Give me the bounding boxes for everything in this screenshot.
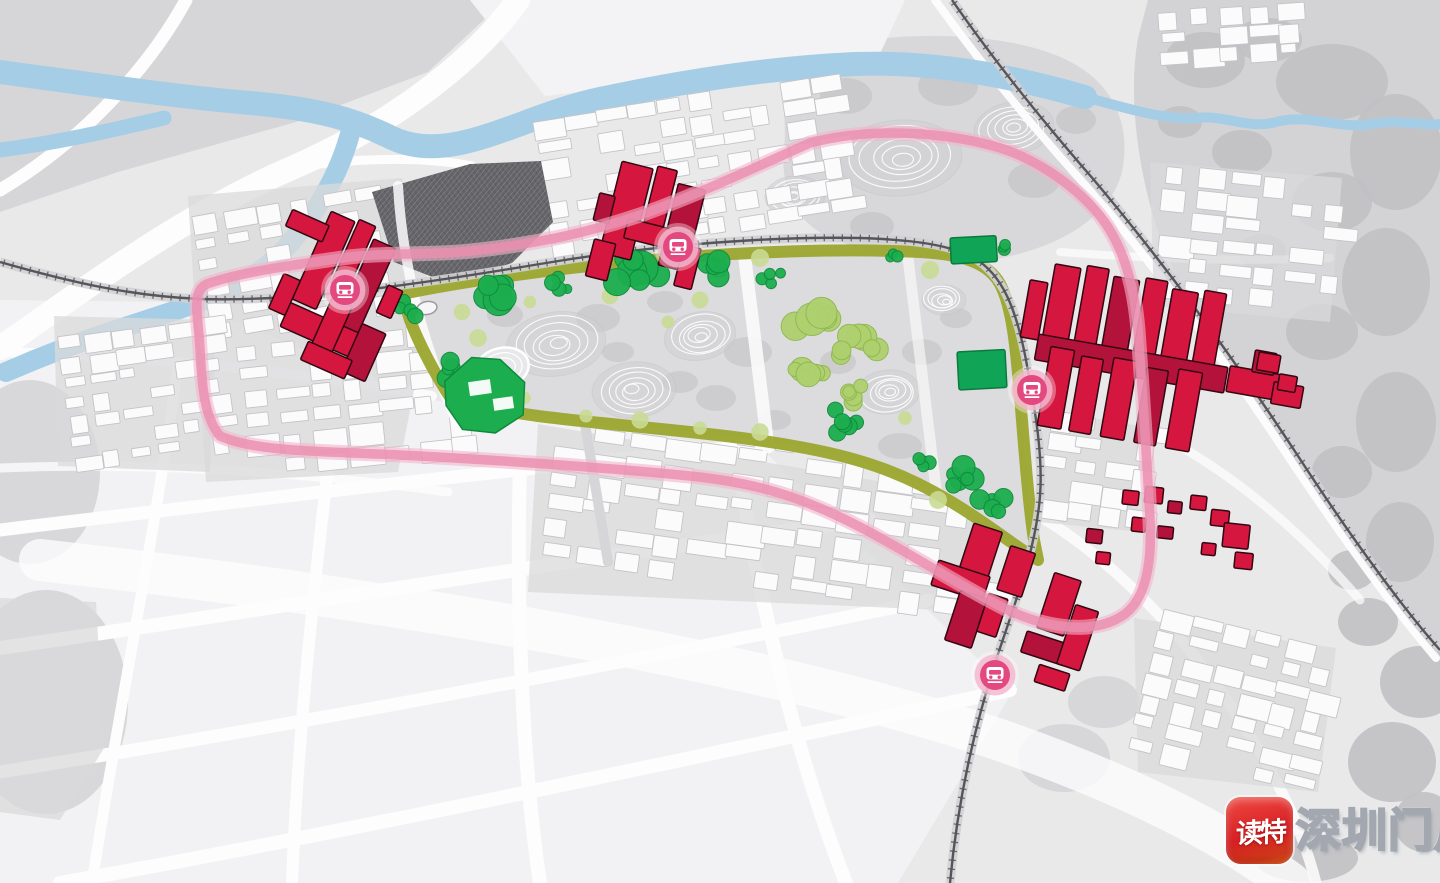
tree-blob-light xyxy=(579,409,592,422)
east-station xyxy=(1008,366,1056,414)
building-block xyxy=(111,329,134,349)
tree-icon xyxy=(991,504,1005,518)
building-block xyxy=(60,356,82,375)
tree-icon xyxy=(776,268,786,278)
building-block xyxy=(154,423,179,440)
building-block xyxy=(1043,455,1067,469)
building-block xyxy=(652,535,679,559)
building-block xyxy=(1149,652,1174,676)
building-block xyxy=(1255,243,1273,256)
building-block xyxy=(1190,239,1218,256)
south-station xyxy=(971,651,1019,699)
building-block xyxy=(92,392,110,412)
building-block xyxy=(58,334,81,349)
north-station xyxy=(654,223,702,271)
building-block xyxy=(647,560,674,581)
building-block xyxy=(753,571,778,590)
building-block xyxy=(655,508,684,532)
tree-icon xyxy=(545,275,561,291)
building-block xyxy=(1098,507,1121,528)
tree-icon xyxy=(832,341,851,360)
tree-blob-light xyxy=(692,292,709,309)
building-block xyxy=(414,396,432,415)
green-building xyxy=(950,236,997,264)
park-blob xyxy=(647,291,683,313)
building-block xyxy=(102,449,119,467)
building-block xyxy=(543,518,567,539)
building-block xyxy=(1165,167,1183,185)
building-block xyxy=(1160,51,1189,66)
red-building xyxy=(1234,552,1254,570)
building-block xyxy=(1250,43,1278,63)
building-block xyxy=(343,379,361,401)
tree-blob-light xyxy=(524,296,537,309)
building-block xyxy=(1281,43,1297,53)
park-blob xyxy=(602,342,634,362)
building-block xyxy=(183,419,200,433)
tree-blob-light xyxy=(693,421,706,434)
tree-icon xyxy=(892,251,903,262)
building-block xyxy=(1190,8,1207,25)
building-block xyxy=(84,331,113,353)
building-block xyxy=(825,178,853,200)
masterplan-map xyxy=(0,0,1440,883)
building-block xyxy=(1252,267,1273,287)
red-building xyxy=(1167,501,1182,514)
building-block xyxy=(285,456,305,471)
tree-icon xyxy=(441,352,459,370)
tree-icon xyxy=(961,472,974,485)
building-block xyxy=(614,552,640,573)
building-block xyxy=(90,352,120,374)
building-block xyxy=(839,488,871,514)
tree-icon xyxy=(863,340,880,357)
building-block xyxy=(1291,204,1312,218)
building-block xyxy=(689,114,713,136)
building-block xyxy=(348,402,383,419)
tree-icon xyxy=(764,268,775,279)
tree-blob-light xyxy=(921,261,939,279)
terrain-blob xyxy=(1068,676,1140,728)
building-block xyxy=(1162,32,1185,43)
tree-icon xyxy=(1000,239,1011,250)
building-block xyxy=(1139,695,1160,716)
park-blob xyxy=(696,385,736,411)
tree-icon xyxy=(834,414,850,430)
building-block xyxy=(765,186,792,206)
tree-canopy-blob xyxy=(1342,228,1430,336)
tree-blob-light xyxy=(662,316,675,329)
building-block xyxy=(1220,6,1244,25)
red-building xyxy=(1201,542,1216,555)
building-block xyxy=(1191,213,1225,234)
building-block xyxy=(1157,235,1195,260)
building-block xyxy=(239,366,267,380)
red-building xyxy=(1086,528,1103,544)
building-block xyxy=(236,346,256,362)
tree-cluster xyxy=(998,239,1010,255)
planning-map-page: { "title": "urban-park-masterplan-render… xyxy=(0,0,1440,883)
building-block xyxy=(659,488,681,505)
tree-blob-light xyxy=(751,249,769,267)
building-block xyxy=(116,346,147,366)
tree-icon xyxy=(407,308,423,324)
red-building xyxy=(1222,523,1250,550)
tree-icon xyxy=(946,478,961,493)
red-building xyxy=(1157,526,1174,540)
tree-icon xyxy=(854,379,868,393)
tree-icon xyxy=(806,297,837,328)
building-block xyxy=(70,415,89,435)
building-block xyxy=(897,591,920,616)
building-block xyxy=(246,412,269,428)
building-block xyxy=(1248,288,1273,307)
building-block xyxy=(313,405,341,421)
tree-blob-light xyxy=(454,304,471,321)
building-block xyxy=(1250,7,1269,25)
building-block xyxy=(1206,689,1225,707)
building-block xyxy=(703,196,727,215)
building-block xyxy=(734,190,760,211)
building-block xyxy=(833,537,862,562)
tree-canopy-blob xyxy=(1212,130,1272,174)
tree-blob-light xyxy=(929,491,947,509)
building-block xyxy=(1277,2,1305,21)
tree-icon xyxy=(478,275,498,295)
tree-blob-light xyxy=(631,411,648,428)
building-block xyxy=(823,157,843,180)
building-block xyxy=(597,130,625,153)
building-block xyxy=(244,390,267,409)
building-block xyxy=(1249,23,1283,37)
building-block xyxy=(280,410,308,423)
building-block xyxy=(780,78,812,101)
building-block xyxy=(71,435,91,447)
green-building xyxy=(957,349,1007,389)
building-block xyxy=(1201,709,1221,729)
building-block xyxy=(1320,275,1338,294)
tree-icon xyxy=(629,270,650,291)
building-block xyxy=(1289,247,1324,265)
building-block xyxy=(349,422,386,448)
building-block xyxy=(1153,630,1174,651)
building-block xyxy=(119,368,135,379)
red-building xyxy=(1096,551,1111,564)
building-block xyxy=(256,203,282,225)
building-block xyxy=(1075,460,1096,475)
terrain-blob xyxy=(1056,106,1096,134)
building-block xyxy=(660,117,687,137)
tree-blob-light xyxy=(469,329,487,347)
building-block xyxy=(1220,26,1249,46)
building-block xyxy=(1324,204,1344,223)
building-block xyxy=(866,564,893,590)
building-block xyxy=(796,528,823,548)
building-block xyxy=(65,396,84,409)
building-block xyxy=(1188,258,1206,273)
red-building xyxy=(1122,490,1139,506)
building-block xyxy=(1226,195,1259,219)
building-block xyxy=(1160,189,1186,213)
tree-icon xyxy=(707,250,730,273)
tree-icon xyxy=(843,386,855,398)
building-block xyxy=(708,216,726,234)
tree-canopy-blob xyxy=(1356,372,1436,472)
building-block xyxy=(731,497,753,510)
red-building xyxy=(1256,352,1281,374)
red-building xyxy=(1190,495,1207,511)
building-block xyxy=(1219,47,1237,62)
tree-blob-light xyxy=(898,411,912,425)
building-block xyxy=(271,341,295,357)
building-block xyxy=(1278,24,1299,44)
tree-canopy-blob xyxy=(1348,722,1436,802)
tree-blob-light xyxy=(751,423,768,440)
building-block xyxy=(375,349,414,374)
building-block xyxy=(312,382,331,397)
building-block xyxy=(540,157,571,181)
building-block xyxy=(1067,502,1092,522)
tree-icon xyxy=(913,453,925,465)
building-block xyxy=(1158,12,1177,31)
building-block xyxy=(379,375,408,391)
hill-contours xyxy=(922,285,966,315)
red-building xyxy=(1277,374,1298,393)
building-block xyxy=(140,325,168,345)
tree-icon xyxy=(796,362,821,387)
building-block xyxy=(1198,168,1227,191)
building-block xyxy=(687,91,712,112)
building-block xyxy=(1263,176,1286,199)
building-block xyxy=(793,555,816,579)
west-station xyxy=(321,266,369,314)
building-block xyxy=(1232,172,1262,187)
building-block xyxy=(192,213,218,236)
building-block xyxy=(750,105,770,127)
